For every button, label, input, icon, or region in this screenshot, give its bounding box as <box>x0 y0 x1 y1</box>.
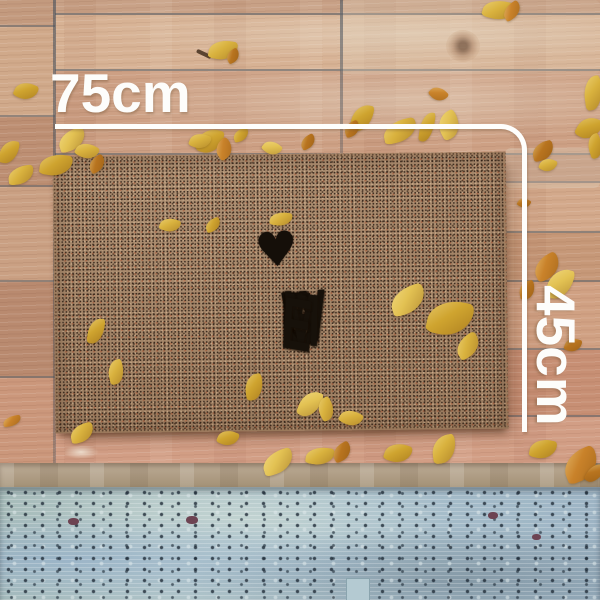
leaf <box>305 445 335 467</box>
leaf <box>381 117 419 146</box>
leaf <box>428 83 450 105</box>
leaf <box>338 406 365 430</box>
leaf <box>0 138 20 165</box>
leaf <box>418 111 436 143</box>
leaf <box>387 282 429 318</box>
leaf <box>39 152 74 178</box>
leaf <box>563 336 583 354</box>
leaf <box>269 211 293 228</box>
leaf <box>383 439 414 466</box>
leaf <box>216 427 241 449</box>
leaf <box>298 133 318 151</box>
leaf <box>433 108 465 141</box>
leaf <box>12 78 40 104</box>
product-photo: ♥ WELCOME 75cm 45cm <box>0 0 600 600</box>
leaf <box>243 373 264 401</box>
leaf <box>430 433 458 464</box>
leaf <box>7 164 35 185</box>
leaf <box>329 440 354 464</box>
leaf <box>516 196 531 211</box>
leaf <box>68 421 96 444</box>
leaf <box>452 331 485 362</box>
leaf <box>517 280 536 301</box>
leaf <box>582 75 600 111</box>
leaf <box>232 127 251 143</box>
leaf <box>261 137 284 159</box>
leaf <box>528 437 558 462</box>
leaf <box>2 415 21 428</box>
leaf <box>203 216 222 233</box>
leaves-layer <box>0 0 600 600</box>
leaf <box>105 358 126 385</box>
leaf <box>86 317 105 345</box>
leaf <box>158 215 181 234</box>
leaf <box>259 447 296 478</box>
